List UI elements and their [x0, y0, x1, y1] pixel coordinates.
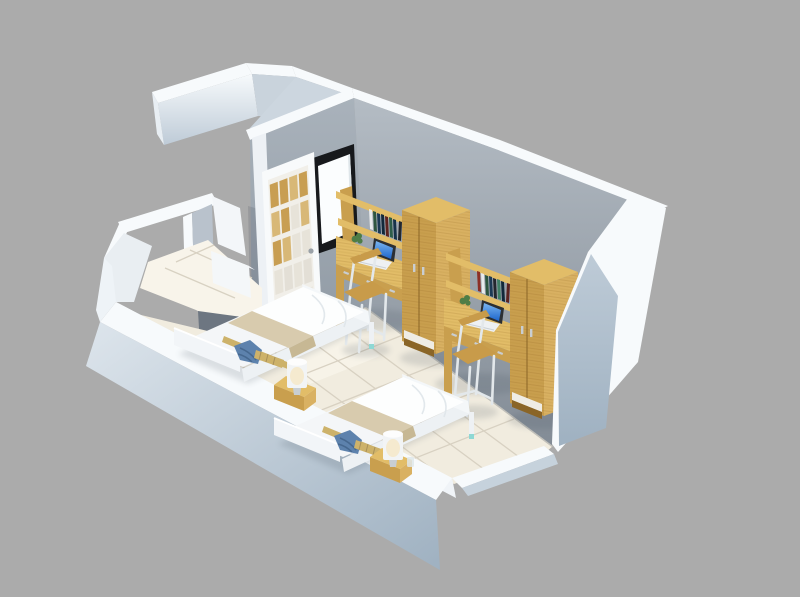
lamp-1-base: [293, 388, 301, 395]
lamp-2-top: [383, 430, 403, 438]
bed-2-foot-cap-right: [469, 434, 474, 439]
water-glass: [407, 457, 414, 467]
door-handle: [308, 248, 313, 253]
bed-1-leg-right: [369, 322, 374, 346]
wardrobe-1-handle-r: [422, 267, 424, 275]
render-canvas: [0, 0, 800, 597]
lamp-2-glow: [386, 439, 400, 457]
dorm-room-3d-render: [0, 0, 800, 597]
wardrobe-2-handle-r: [530, 329, 532, 337]
bed-2-leg-right: [469, 412, 474, 436]
lamp-2-base: [389, 460, 397, 467]
wardrobe-1-handle-l: [413, 264, 415, 272]
lamp-1-top: [287, 358, 307, 366]
wardrobe-2-handle-l: [521, 326, 523, 334]
chair-1-shadow: [342, 343, 390, 357]
bed-1-foot-cap-right: [369, 344, 374, 349]
lamp-1-glow: [290, 367, 304, 385]
desk-2-leg: [444, 338, 452, 394]
